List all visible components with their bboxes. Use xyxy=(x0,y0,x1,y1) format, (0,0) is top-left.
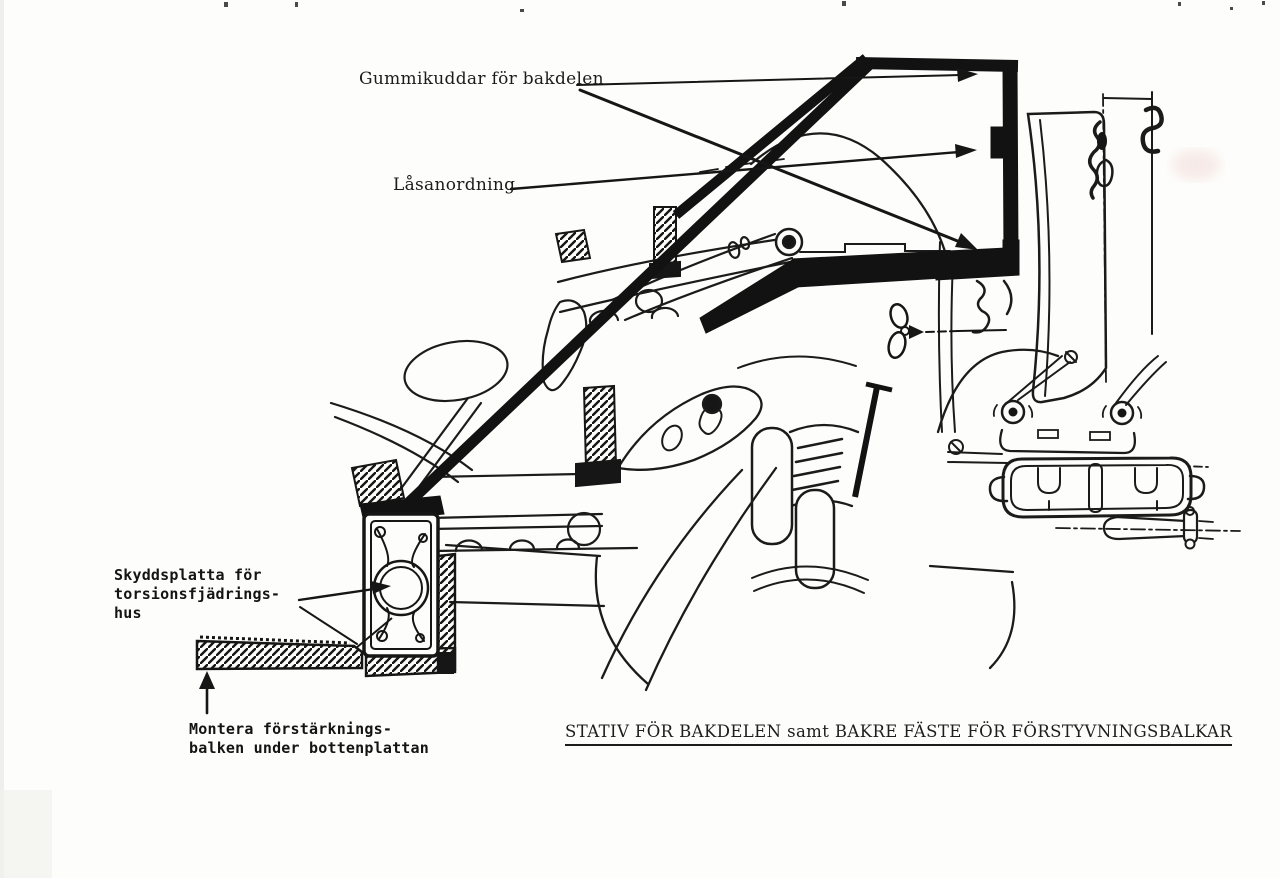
leader-gummikuddar-top xyxy=(577,75,960,85)
arrowhead-lock xyxy=(955,144,977,158)
arrowhead-beam xyxy=(199,671,215,689)
label-montera-line1: Montera förstärknings- xyxy=(189,720,429,739)
label-skyddsplatta-line1: Skyddsplatta för xyxy=(114,566,280,585)
muffler-assembly xyxy=(948,356,1240,549)
label-skyddsplatta-line3: hus xyxy=(114,604,280,623)
label-skyddsplatta-line2: torsionsfjädrings- xyxy=(114,585,280,604)
label-montera-line2: balken under bottenplattan xyxy=(189,739,429,758)
figure-caption: STATIV FÖR BAKDELEN samt BAKRE FÄSTE FÖR… xyxy=(565,722,1232,746)
arrowhead-bottom-pad xyxy=(955,233,978,250)
label-gummikuddar: Gummikuddar för bakdelen xyxy=(359,70,604,89)
protective-plate-assembly xyxy=(364,514,455,676)
scanned-diagram-page: Gummikuddar för bakdelen Låsanordning Sk… xyxy=(0,0,1280,878)
rubber-pad-lock xyxy=(991,127,1010,158)
wing-nut-datum xyxy=(886,302,1006,359)
leader-gummikuddar-bottom xyxy=(580,90,960,242)
label-skyddsplatta: Skyddsplatta för torsionsfjädrings- hus xyxy=(114,566,280,623)
leader-skyddsplatta-2 xyxy=(300,607,357,644)
label-lasanordning: Låsanordning xyxy=(393,176,515,195)
label-montera: Montera förstärknings- balken under bott… xyxy=(189,720,429,758)
